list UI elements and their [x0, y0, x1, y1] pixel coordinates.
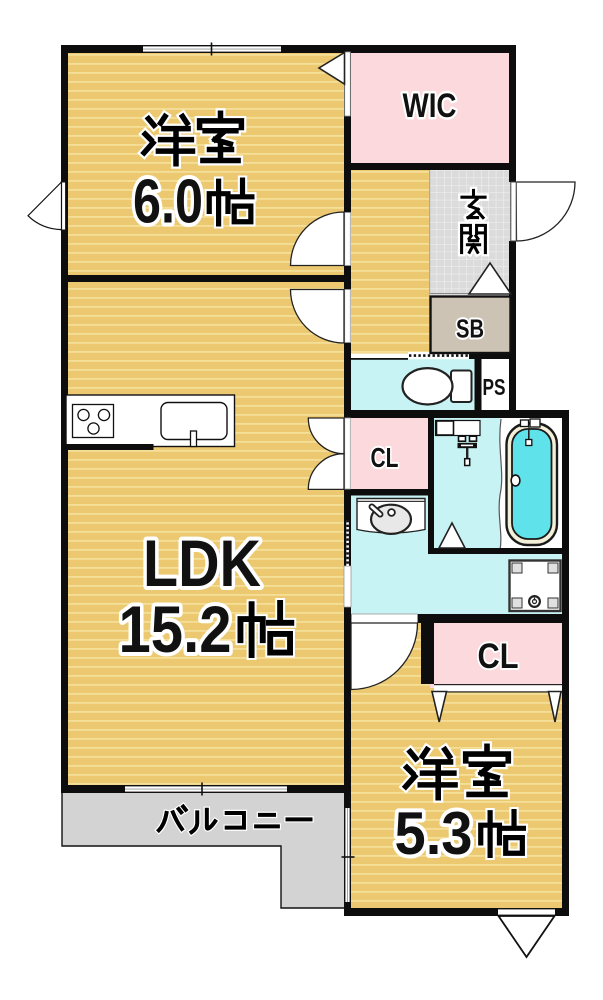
- svg-text:CL: CL: [371, 442, 399, 473]
- svg-text:5.3: 5.3: [395, 800, 473, 867]
- svg-text:SB: SB: [456, 314, 484, 344]
- svg-text:15.2: 15.2: [119, 592, 232, 666]
- svg-text:PS: PS: [483, 374, 506, 400]
- svg-text:CL: CL: [478, 637, 519, 676]
- svg-text:WIC: WIC: [403, 87, 457, 125]
- svg-text:6.0: 6.0: [133, 168, 203, 237]
- svg-text:LDK: LDK: [143, 526, 261, 600]
